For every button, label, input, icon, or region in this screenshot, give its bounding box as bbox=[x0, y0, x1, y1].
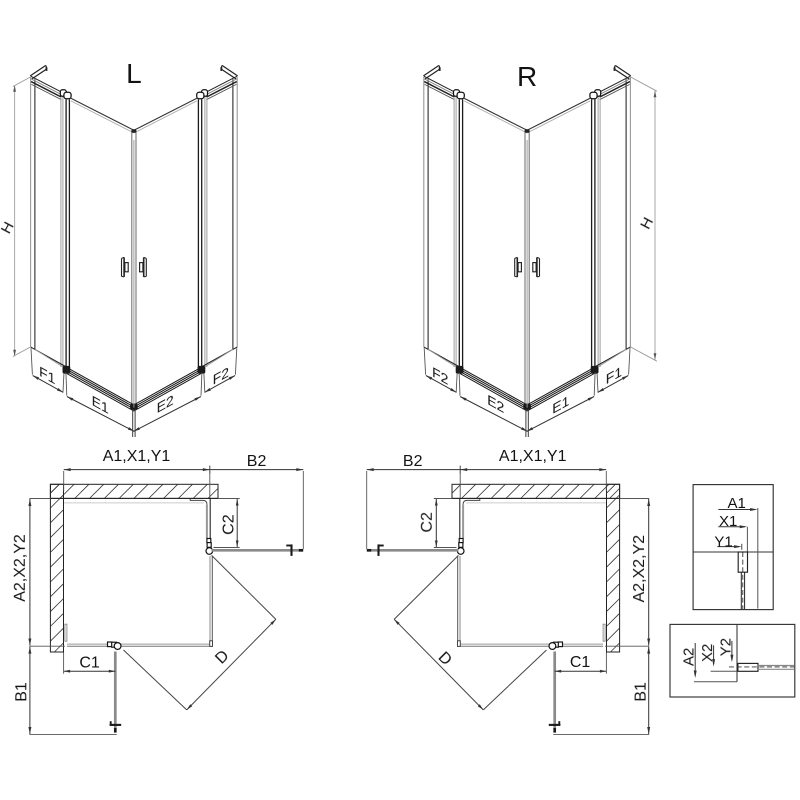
svg-text:A2: A2 bbox=[681, 648, 698, 666]
svg-text:B2: B2 bbox=[403, 453, 423, 470]
svg-text:A1,X1,Y1: A1,X1,Y1 bbox=[499, 448, 567, 465]
svg-text:C1: C1 bbox=[79, 654, 100, 671]
svg-text:C2: C2 bbox=[221, 514, 238, 535]
svg-text:Y1: Y1 bbox=[714, 533, 732, 550]
svg-text:A2,X2,Y2: A2,X2,Y2 bbox=[12, 534, 29, 602]
svg-text:B1: B1 bbox=[633, 682, 650, 702]
svg-text:X2: X2 bbox=[699, 644, 716, 662]
svg-text:Y2: Y2 bbox=[718, 638, 735, 656]
svg-text:C1: C1 bbox=[570, 654, 591, 671]
svg-text:R: R bbox=[517, 61, 537, 92]
svg-text:A1: A1 bbox=[728, 495, 746, 512]
svg-text:X1: X1 bbox=[719, 513, 737, 530]
svg-text:L: L bbox=[126, 58, 142, 89]
svg-text:A1,X1,Y1: A1,X1,Y1 bbox=[103, 448, 171, 465]
svg-text:B2: B2 bbox=[247, 453, 267, 470]
svg-text:B1: B1 bbox=[13, 682, 30, 702]
svg-text:A2,X2,Y2: A2,X2,Y2 bbox=[631, 535, 648, 603]
svg-text:C2: C2 bbox=[419, 512, 436, 533]
